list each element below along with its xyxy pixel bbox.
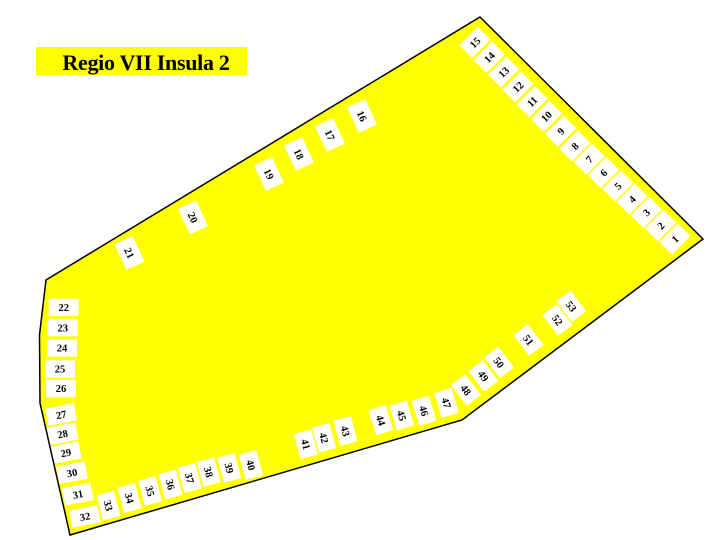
svg-text:28: 28	[57, 429, 69, 442]
svg-text:31: 31	[72, 489, 84, 502]
svg-text:25: 25	[55, 365, 66, 376]
svg-text:27: 27	[55, 409, 67, 422]
svg-text:30: 30	[66, 468, 78, 481]
svg-text:22: 22	[58, 303, 68, 314]
svg-text:29: 29	[60, 447, 72, 460]
svg-text:Regio VII Insula 2: Regio VII Insula 2	[62, 50, 229, 75]
svg-text:26: 26	[56, 384, 67, 395]
svg-text:24: 24	[57, 344, 68, 355]
svg-text:23: 23	[57, 323, 67, 334]
svg-text:32: 32	[79, 511, 91, 524]
